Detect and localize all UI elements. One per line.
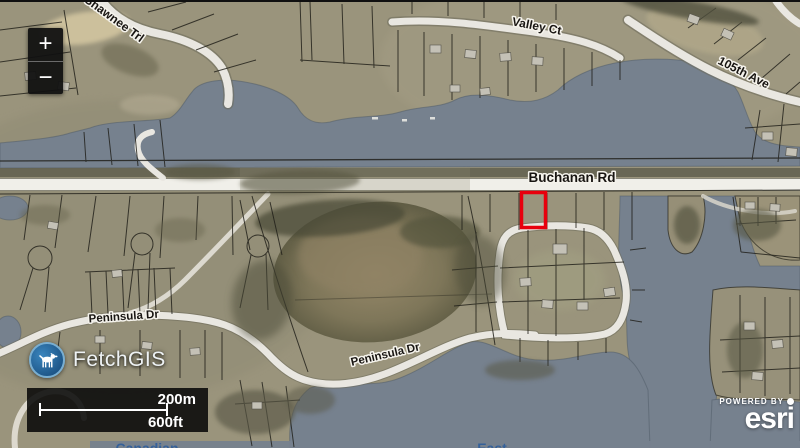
zoom-in-button[interactable]: + xyxy=(28,28,63,61)
window-top-edge xyxy=(0,0,800,2)
road-label-buchanan: Buchanan Rd xyxy=(528,170,615,185)
map-canvas[interactable]: Shawnee Trl Valley Ct 105th Ave Buchanan… xyxy=(0,0,800,448)
esri-attribution[interactable]: POWERED BY esri xyxy=(718,397,794,432)
buchanan-road-corridor xyxy=(0,168,800,191)
scale-imperial-label: 600ft xyxy=(148,414,183,431)
water-label-canadian: Canadian xyxy=(115,440,178,448)
map-viewport: Shawnee Trl Valley Ct 105th Ave Buchanan… xyxy=(0,0,800,448)
scale-bar: 200m 600ft xyxy=(27,388,208,432)
zoom-control: + − xyxy=(28,28,63,94)
fetchgis-wordmark: FetchGIS xyxy=(73,348,166,372)
scale-line xyxy=(40,409,167,411)
fetchgis-logo: FetchGIS xyxy=(29,342,166,378)
water-label-east: East xyxy=(477,440,507,448)
zoom-out-button[interactable]: − xyxy=(28,61,63,94)
esri-wordmark: esri xyxy=(718,406,794,432)
dog-icon xyxy=(29,342,65,378)
scale-metric-label: 200m xyxy=(158,391,196,408)
